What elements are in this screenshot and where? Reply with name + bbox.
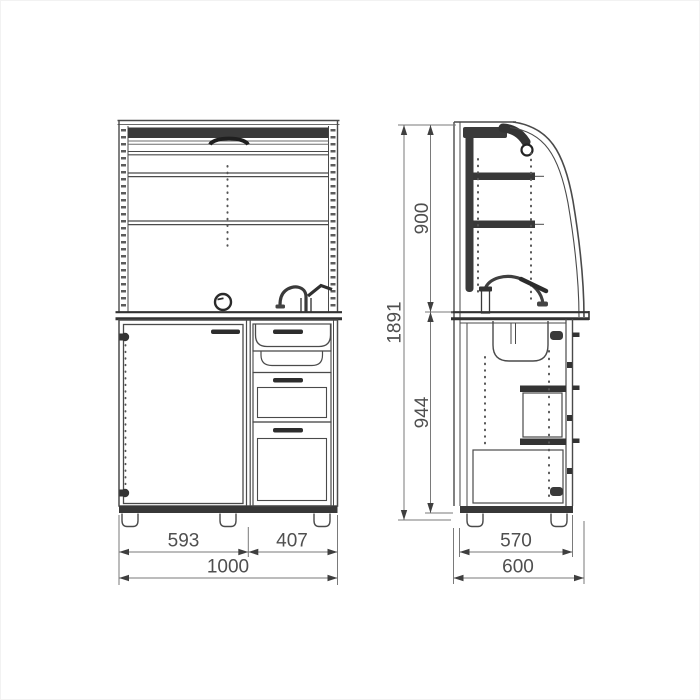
dim-label-total-width: 1000	[207, 557, 249, 578]
front-knob-icon	[215, 294, 231, 310]
door-hinge-bottom-icon	[120, 489, 130, 497]
dim-label-lower-height: 944	[412, 396, 433, 428]
side-countertop	[451, 311, 589, 323]
sink-drawer	[253, 324, 331, 373]
front-plinth	[119, 506, 338, 513]
side-hinge-bottom-icon	[550, 487, 563, 496]
front-hutch-frame	[118, 120, 340, 312]
bottom-drawer	[253, 422, 331, 506]
side-shelves	[473, 153, 544, 301]
dim-label-total-height: 1891	[385, 301, 406, 343]
side-faucet-icon	[479, 276, 548, 313]
front-feet	[122, 514, 330, 527]
side-rail-lower	[520, 439, 566, 446]
technical-drawing-canvas: 593 407 1000	[0, 0, 700, 700]
dim-label-drawers-width: 407	[276, 531, 308, 552]
front-countertop	[116, 312, 343, 319]
side-sink-bowl	[493, 321, 548, 361]
side-view: 1891 900 944 570 600	[385, 122, 589, 584]
side-base-cabinet	[460, 319, 580, 527]
sink-drawer-handle	[273, 330, 303, 335]
sink-bowl-outline	[256, 324, 331, 347]
side-handle-3	[573, 439, 580, 444]
front-faucet-icon	[276, 286, 333, 313]
door-hinge-top-icon	[120, 333, 130, 341]
side-plinth	[460, 506, 573, 513]
side-hinge-top-icon	[550, 331, 563, 340]
dim-label-door-width: 593	[168, 531, 200, 552]
side-rail-upper	[520, 386, 566, 393]
middle-drawer	[253, 373, 331, 423]
front-base-cabinet	[119, 320, 338, 527]
drawing-svg: 593 407 1000	[1, 1, 700, 700]
dim-label-upper-height: 900	[412, 203, 433, 235]
middle-drawer-handle	[273, 378, 303, 383]
bottom-drawer-handle	[273, 428, 303, 433]
side-feet	[467, 514, 567, 527]
side-handle-2	[573, 386, 580, 391]
side-handle-1	[573, 333, 580, 338]
door-handle	[211, 330, 240, 335]
side-height-dimensions: 1891 900 944	[385, 125, 456, 520]
side-face-hardware	[550, 331, 580, 496]
dim-label-body-depth: 570	[500, 531, 532, 552]
front-view: 593 407 1000	[116, 120, 343, 585]
dim-label-total-depth: 600	[502, 557, 534, 578]
cabinet-door	[120, 325, 244, 504]
side-back-stile	[466, 134, 474, 292]
side-drawer-box	[523, 393, 562, 437]
front-shelves	[128, 166, 329, 250]
front-roller-shutter	[128, 128, 329, 155]
